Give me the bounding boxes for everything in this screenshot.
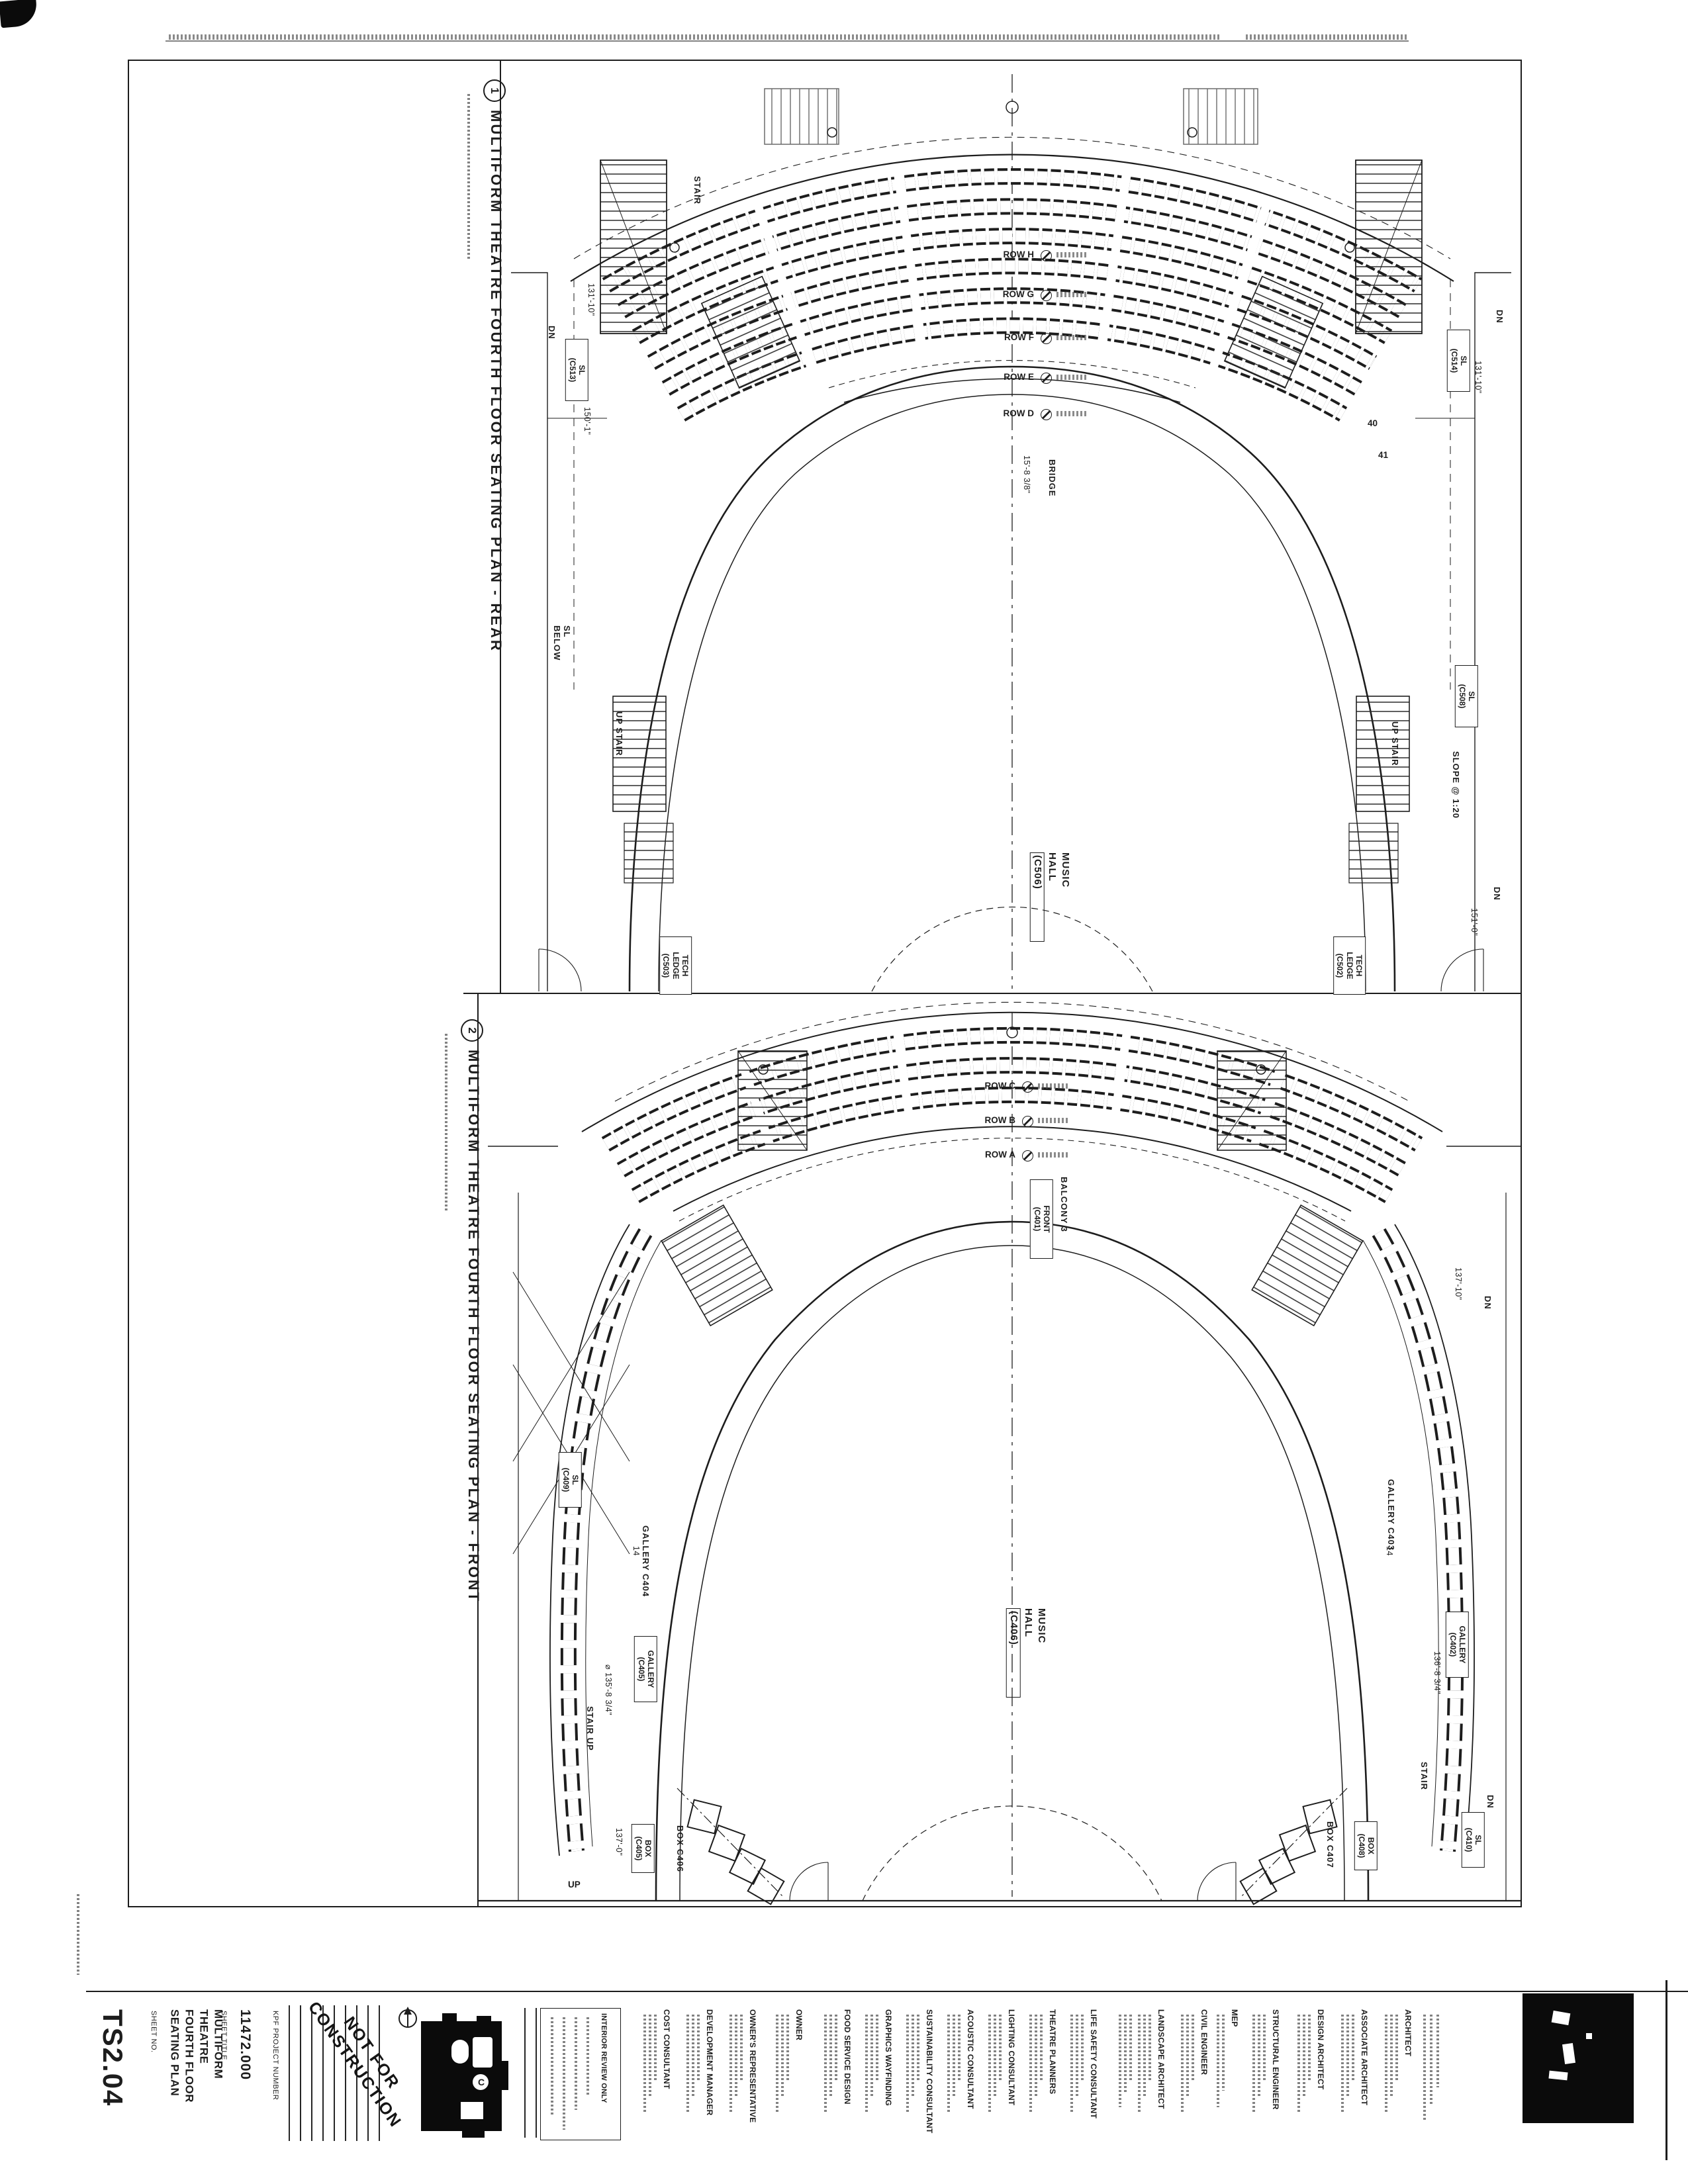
- plan1-sl-c513-tag: SL(C513): [565, 339, 588, 401]
- elevation-value-smudge: [1056, 335, 1087, 340]
- consultant-lines: [829, 2015, 832, 2097]
- scan-note-left-bottom: [77, 1894, 79, 1975]
- consultant-lines: [740, 2015, 743, 2081]
- consultant-heading: LANDSCAPE ARCHITECT: [1156, 2009, 1166, 2135]
- plan2-row-label: ROW B: [973, 1115, 1015, 1125]
- elevation-value-smudge: [1056, 292, 1087, 297]
- consultant-lines: [1143, 2015, 1146, 2097]
- plan1-dn-label: DN: [1495, 310, 1505, 332]
- consultant-lines: [686, 2015, 689, 2114]
- plan1-hall-label: MUSICHALL(C506): [1030, 852, 1072, 942]
- consultant-lines: [1070, 2015, 1073, 2114]
- consultant-lines: [1149, 2015, 1151, 2081]
- consultant-lines: [697, 2015, 700, 2081]
- elevation-marker-icon: [1041, 250, 1052, 261]
- plan1-dim: 151'-0": [1470, 908, 1479, 964]
- consultant-lines: [1192, 2015, 1194, 2081]
- consultant-lines: [729, 2015, 732, 2114]
- plan1-sl-c508-tag: SL(C508): [1455, 665, 1478, 727]
- consultant-heading: OWNER: [794, 2009, 804, 2135]
- plan1-dn-label: DN: [547, 326, 557, 348]
- consultant-lines: [1423, 2015, 1426, 2120]
- plan2-row-label: ROW A: [973, 1150, 1015, 1160]
- consultant-lines: [1035, 2015, 1037, 2097]
- plan2-front-tag: FRONT(C401): [1030, 1179, 1053, 1259]
- plan1-row-label: ROW G: [992, 289, 1034, 299]
- plan1-dn-label: DN: [1492, 887, 1502, 909]
- consultant-lines: [1081, 2015, 1084, 2081]
- plan1-slope-label: SLOPE @ 1:20: [1451, 751, 1461, 841]
- plan1-dim: 131'-10": [1474, 361, 1483, 424]
- consultant-lines: [876, 2015, 878, 2081]
- plan1-up-stair-label: UP STAIR: [1390, 721, 1400, 784]
- plan2-gallery-right-label: GALLERY C403: [1386, 1479, 1396, 1582]
- consultant-lines: [649, 2015, 651, 2097]
- consultant-lines: [1352, 2015, 1354, 2081]
- consultant-lines: [654, 2015, 657, 2081]
- plan1-bridge-dim: 15'-8 3/8": [1022, 455, 1031, 525]
- plan1-tech-ledge-left-tag: TECHLEDGE(C503): [659, 936, 692, 995]
- consultant-heading: LIFE SAFETY CONSULTANT: [1089, 2009, 1098, 2135]
- plan1-dim: 131'-10": [586, 283, 596, 346]
- consultant-lines: [1222, 2015, 1225, 2091]
- plan1-row-label: ROW H: [992, 250, 1034, 259]
- sheet-title: MULTIFORM THEATRE FOURTH FLOOR SEATING P…: [167, 2009, 225, 2132]
- consultant-lines: [1430, 2015, 1432, 2104]
- consultant-heading: ASSOCIATE ARCHITECT: [1360, 2009, 1369, 2135]
- scan-edge-right: [1665, 1980, 1667, 2160]
- consultant-heading: GRAPHICS WAYFINDING: [884, 2009, 893, 2135]
- plan1-stair-label: STAIR: [692, 176, 702, 222]
- plan2-sl-c409-tag: SL(C409): [559, 1452, 582, 1508]
- consultant-lines: [912, 2015, 914, 2097]
- north-arrow-icon: [399, 2007, 416, 2027]
- plan2-gallery-right-tag: GALLERY(C402): [1446, 1612, 1469, 1678]
- consultant-lines: [999, 2015, 1002, 2081]
- plan2-box-left-label: BOX C406: [675, 1825, 685, 1882]
- consultant-lines: [1346, 2015, 1349, 2097]
- elevation-value-smudge: [1038, 1152, 1068, 1158]
- consultant-lines: [1395, 2015, 1398, 2081]
- keyplan-letter: C: [478, 2077, 485, 2087]
- elevation-value-smudge: [1038, 1118, 1068, 1123]
- plan2-dn-label: DN: [1483, 1296, 1493, 1318]
- plan2-gallery-left-tag: GALLERY(C405): [634, 1636, 657, 1702]
- interior-review-lines: [563, 2017, 565, 2130]
- consultant-heading: COST CONSULTANT: [662, 2009, 671, 2135]
- elevation-marker-icon: [1022, 1081, 1033, 1093]
- plan2-balcony-label: BALCONY 3: [1059, 1177, 1069, 1253]
- consultant-lines: [1129, 2015, 1132, 2081]
- elevation-marker-icon: [1041, 373, 1052, 384]
- consultant-heading: CIVIL ENGINEER: [1199, 2009, 1209, 2135]
- consultant-heading: SUSTAINABILITY CONSULTANT: [925, 2009, 934, 2135]
- scan-top-line: [165, 40, 1409, 42]
- consultant-heading: LIGHTING CONSULTANT: [1007, 2009, 1016, 2135]
- consultant-heading: ARCHITECT: [1403, 2009, 1413, 2135]
- consultant-lines: [781, 2015, 784, 2097]
- plan2-gallery-left-label: GALLERY C404: [641, 1525, 651, 1628]
- consultant-lines: [958, 2015, 961, 2081]
- firm-logo-mark: [1586, 2033, 1592, 2039]
- plan2-dn-label: DN: [1485, 1795, 1495, 1817]
- consultant-heading: OWNER'S REPRESENTATIVE: [748, 2009, 757, 2135]
- consultant-heading: ACOUSTIC CONSULTANT: [966, 2009, 975, 2135]
- sheet-border-bottom: [128, 1906, 1522, 1907]
- consultant-heading: STRUCTURAL ENGINEER: [1271, 2009, 1280, 2135]
- plan1-sl-below-label: SLBELOW: [552, 625, 572, 698]
- consultant-lines: [1258, 2015, 1260, 2097]
- plan2-hall-label: MUSICHALL(C406): [1006, 1608, 1048, 1698]
- plan1-dim: 150'-1": [583, 407, 592, 463]
- scan-artifact-corner: [0, 0, 38, 28]
- plan2-dim: 137'-10": [1454, 1267, 1463, 1334]
- consultant-lines: [870, 2015, 873, 2097]
- sheet-border-left: [128, 61, 129, 1907]
- consultant-heading: DESIGN ARCHITECT: [1316, 2009, 1325, 2135]
- interior-review-lines: [575, 2017, 577, 2110]
- plan1-bridge-label: BRIDGE: [1047, 459, 1057, 512]
- consultant-lines: [1297, 2015, 1300, 2114]
- consultant-lines: [1252, 2015, 1255, 2114]
- plan1-row-label: ROW F: [992, 332, 1034, 342]
- plan2-dim: 136'-8 3/4": [1432, 1651, 1442, 1744]
- elevation-value-smudge: [1038, 1083, 1068, 1089]
- plan2-sl-c410-tag: SL(C410): [1462, 1812, 1485, 1868]
- consultant-lines: [947, 2015, 950, 2114]
- key-plan: [395, 2003, 518, 2144]
- consultant-heading: THEATRE PLANNERS: [1048, 2009, 1057, 2135]
- plan2-scale-note: [445, 1034, 447, 1212]
- consultant-lines: [643, 2015, 646, 2114]
- revision-hatch-2: [524, 2008, 538, 2138]
- drawing-sheet: 1MULTIFORM THEATRE FOURTH FLOOR SEATING …: [0, 0, 1688, 2184]
- consultant-lines: [1308, 2015, 1311, 2081]
- sheet-title-label: SHEET TITLE: [220, 2011, 228, 2083]
- interior-review-lines: [551, 2017, 553, 2116]
- consultant-heading: FOOD SERVICE DESIGN: [843, 2009, 852, 2135]
- plan2-dim: 137'-0": [614, 1828, 624, 1884]
- interior-review-lines: [586, 2017, 589, 2097]
- sheet-number: TS2.04: [97, 2009, 128, 2125]
- consultant-lines: [735, 2015, 737, 2097]
- consultant-lines: [786, 2015, 789, 2081]
- consultant-lines: [1263, 2015, 1266, 2081]
- plan2-stair-label: STAIR: [1419, 1762, 1429, 1808]
- consultant-lines: [1029, 2015, 1032, 2114]
- consultant-lines: [1436, 2015, 1439, 2087]
- consultant-lines: [906, 2015, 909, 2114]
- elevation-value-smudge: [1056, 375, 1087, 380]
- sheet-number-label: SHEET NO.: [150, 2011, 158, 2083]
- scan-note-strip-right: [1246, 34, 1409, 40]
- consultant-lines: [953, 2015, 955, 2097]
- consultant-lines: [865, 2015, 868, 2114]
- consultant-lines: [1138, 2015, 1141, 2114]
- plan2-box-left-tag: BOX(C405): [632, 1824, 655, 1873]
- project-number-label: KPF PROJECT NUMBER: [271, 2011, 279, 2110]
- scan-note-strip: [169, 34, 1221, 40]
- consultant-lines: [1385, 2015, 1387, 2114]
- plan1-sl-c514-tag: SL(C514): [1447, 330, 1470, 392]
- plan1-up-stair-label: UP STAIR: [614, 711, 624, 774]
- consultant-lines: [988, 2015, 991, 2114]
- elevation-marker-icon: [1041, 290, 1052, 301]
- plan2-row-label: ROW C: [973, 1081, 1015, 1091]
- plan2-dim: ⌀ 135'-8 3/4": [604, 1664, 614, 1760]
- project-number: 11472.000: [237, 2009, 253, 2109]
- plan2-stair-up-label: STAIR UP: [585, 1706, 595, 1772]
- elevation-marker-icon: [1022, 1116, 1033, 1127]
- interior-review-heading: INTERIOR REVIEW ONLY: [600, 2013, 608, 2134]
- plan1-row-label: ROW D: [992, 408, 1034, 418]
- plan1-seat-count: 40: [1368, 418, 1378, 428]
- elevation-value-smudge: [1056, 252, 1087, 257]
- elevation-value-smudge: [1056, 411, 1087, 416]
- consultant-lines: [824, 2015, 827, 2114]
- consultant-lines: [1076, 2015, 1078, 2097]
- consultant-lines: [1186, 2015, 1189, 2097]
- consultant-lines: [1341, 2015, 1344, 2114]
- plan2-up-label: UP: [568, 1880, 581, 1889]
- plan1-seat-count: 41: [1378, 450, 1388, 460]
- consultant-heading: MEP: [1230, 2009, 1239, 2135]
- consultant-lines: [776, 2015, 778, 2114]
- consultant-lines: [1040, 2015, 1043, 2081]
- consultant-lines: [1124, 2015, 1127, 2094]
- elevation-marker-icon: [1022, 1150, 1033, 1161]
- consultant-lines: [1119, 2015, 1121, 2107]
- consultant-lines: [1303, 2015, 1305, 2097]
- plan2-box-right-label: BOX C407: [1325, 1821, 1335, 1878]
- elevation-marker-icon: [1041, 333, 1052, 344]
- consultant-lines: [1217, 2015, 1219, 2107]
- consultant-lines: [1390, 2015, 1393, 2097]
- consultant-lines: [917, 2015, 919, 2081]
- plan1-row-label: ROW E: [992, 372, 1034, 382]
- consultant-lines: [835, 2015, 837, 2081]
- consultant-lines: [1181, 2015, 1184, 2114]
- plan1-drawing: [501, 61, 1521, 994]
- consultant-lines: [994, 2015, 996, 2097]
- plan1-scale-note: [467, 94, 470, 259]
- consultant-lines: [692, 2015, 694, 2097]
- plan2-box-right-tag: BOX(C408): [1354, 1821, 1378, 1870]
- plan2-count: 14: [632, 1546, 641, 1566]
- plan1-tech-ledge-right-tag: TECHLEDGE(C502): [1333, 936, 1366, 995]
- elevation-marker-icon: [1041, 409, 1052, 420]
- consultant-heading: DEVELOPMENT MANAGER: [705, 2009, 714, 2135]
- firm-logo: [1523, 1993, 1634, 2123]
- plan2-drawing: [479, 994, 1521, 1906]
